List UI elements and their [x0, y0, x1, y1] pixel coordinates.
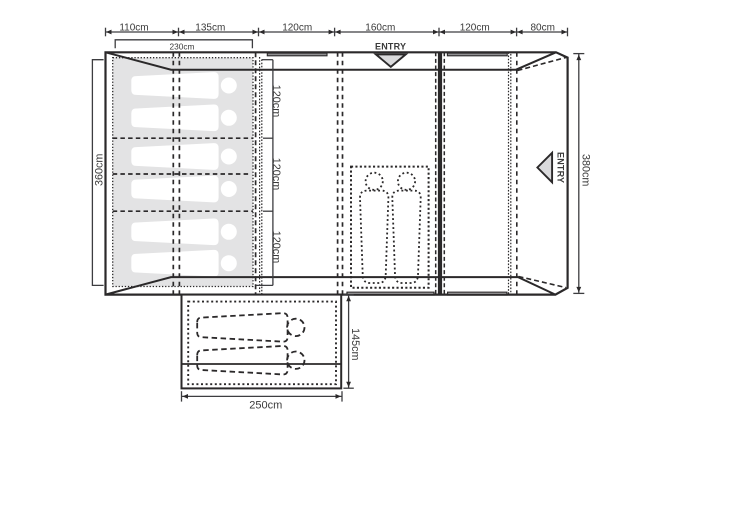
svg-text:ENTRY: ENTRY [375, 41, 406, 51]
svg-text:80cm: 80cm [530, 22, 554, 33]
svg-text:120cm: 120cm [270, 158, 282, 190]
svg-text:230cm: 230cm [170, 41, 195, 51]
svg-text:145cm: 145cm [349, 328, 361, 360]
svg-text:120cm: 120cm [282, 22, 312, 33]
svg-text:360cm: 360cm [93, 154, 105, 186]
svg-text:135cm: 135cm [195, 22, 225, 33]
svg-text:250cm: 250cm [249, 400, 282, 412]
svg-text:160cm: 160cm [365, 22, 395, 33]
svg-text:120cm: 120cm [270, 85, 282, 117]
svg-text:120cm: 120cm [270, 231, 282, 263]
svg-text:120cm: 120cm [460, 22, 490, 33]
svg-text:110cm: 110cm [119, 22, 148, 33]
svg-text:ENTRY: ENTRY [555, 152, 565, 183]
svg-text:380cm: 380cm [579, 154, 591, 186]
